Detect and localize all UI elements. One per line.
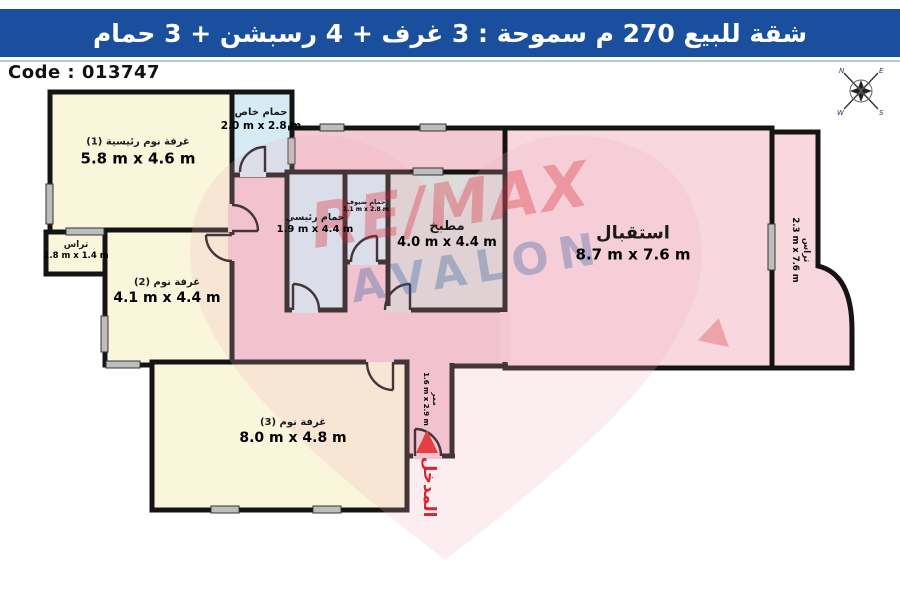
room-main-bath — [287, 172, 345, 310]
room-bedroom-2 — [105, 230, 232, 365]
room-terrace-left — [46, 232, 108, 274]
room-master-bedroom — [50, 92, 232, 232]
room-bedroom-3 — [152, 362, 407, 510]
room-guest-bath — [345, 172, 388, 262]
room-kitchen — [388, 172, 505, 310]
label-entrance: المدخل — [419, 457, 439, 518]
room-reception — [505, 128, 772, 368]
floorplan-page: شقة للبيع 270 م سموحة : 3 غرف + 4 رسبشن … — [0, 0, 900, 600]
room-terrace-right — [772, 132, 852, 368]
floorplan-drawing — [0, 0, 900, 600]
